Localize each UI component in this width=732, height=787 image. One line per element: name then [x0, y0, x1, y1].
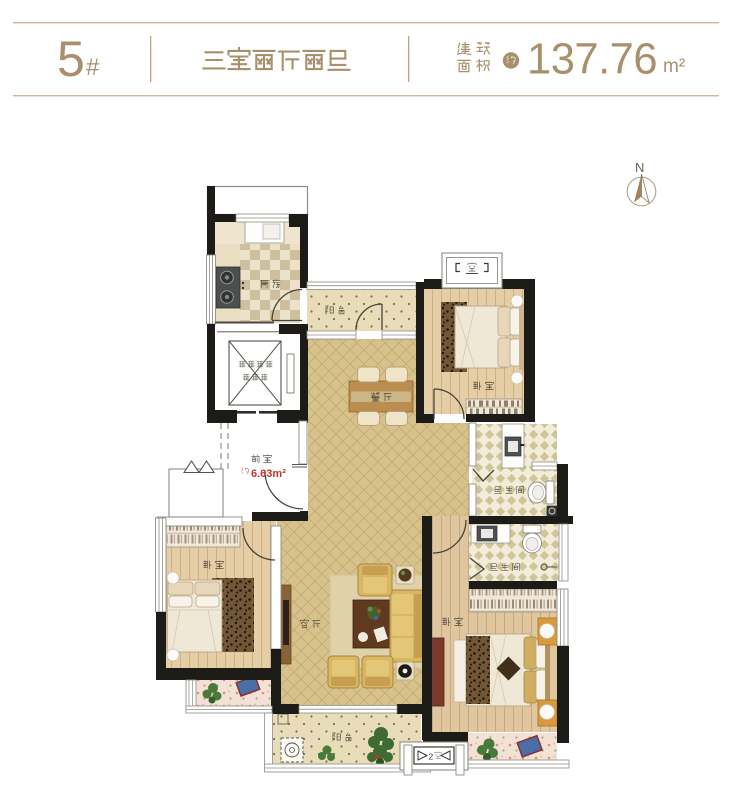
svg-text:2: 2 — [429, 752, 434, 762]
svg-text:5: 5 — [57, 31, 85, 87]
svg-text:#: # — [86, 54, 100, 81]
svg-text:6.63m²: 6.63m² — [251, 468, 286, 480]
svg-text:m²: m² — [663, 56, 685, 77]
svg-text:N: N — [635, 160, 644, 175]
svg-text:137.76: 137.76 — [527, 36, 657, 84]
